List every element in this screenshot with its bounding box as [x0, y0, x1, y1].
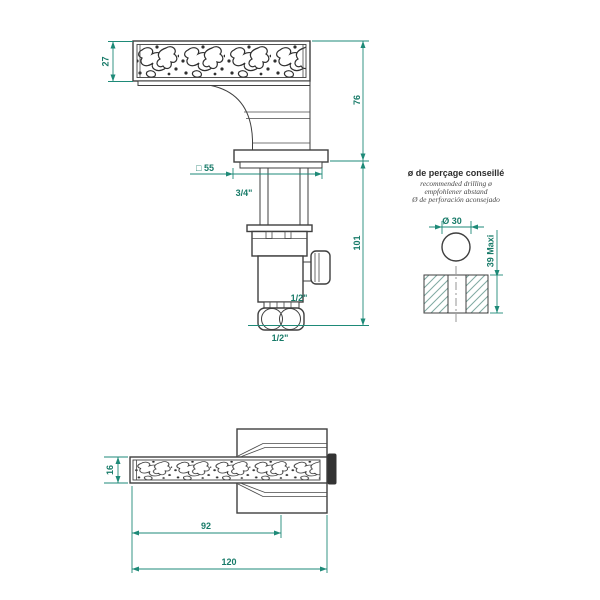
- bottom-outlet-size-label: 1/2": [272, 333, 289, 343]
- dim-spout-reach-label: 92: [201, 521, 211, 531]
- dim-hole-diameter-label: Ø 30: [442, 216, 462, 226]
- dim-spout-height-label: 27: [101, 56, 111, 66]
- dimension-height-above-76: 76: [312, 41, 369, 161]
- dim-max-thickness-label: 39 Maxi: [486, 235, 496, 268]
- drill-hole-circle: [442, 233, 470, 261]
- faucet-top-view: [130, 429, 337, 513]
- inlet-size-label: 3/4": [236, 188, 253, 198]
- decorative-band-side: [137, 45, 306, 78]
- supply-pipe-right: [300, 168, 308, 225]
- technical-drawing-canvas: 27 □ 55 76 101 3/4" 1/2" 1/2" ø de perça…: [0, 0, 600, 600]
- drill-recommendation-note: ø de perçage conseillé recommended drill…: [408, 168, 505, 322]
- faucet-side-view: [133, 41, 330, 330]
- side-outlet-port: [311, 251, 330, 284]
- dim-height-above-label: 76: [352, 95, 362, 105]
- technical-drawing-page: 27 □ 55 76 101 3/4" 1/2" 1/2" ø de perça…: [0, 0, 600, 600]
- side-outlet-size-label: 1/2": [291, 293, 308, 303]
- supply-pipe-left: [260, 168, 268, 225]
- dim-base-square-label: □ 55: [196, 163, 214, 173]
- dimension-spout-height-27: 27: [101, 42, 134, 82]
- dimension-spout-width-16: 16: [104, 457, 128, 483]
- handle-tab: [328, 454, 337, 485]
- dimension-total-length-120: 120: [132, 515, 327, 573]
- drill-note-subtitle-es: Ø de perforación aconsejado: [411, 195, 500, 204]
- base-flange: [234, 150, 328, 162]
- drill-note-title: ø de perçage conseillé: [408, 168, 505, 178]
- dim-total-length-label: 120: [221, 557, 236, 567]
- decorative-band-top: [133, 460, 320, 480]
- dim-spout-width-label: 16: [105, 465, 115, 475]
- dim-height-below-label: 101: [352, 235, 362, 250]
